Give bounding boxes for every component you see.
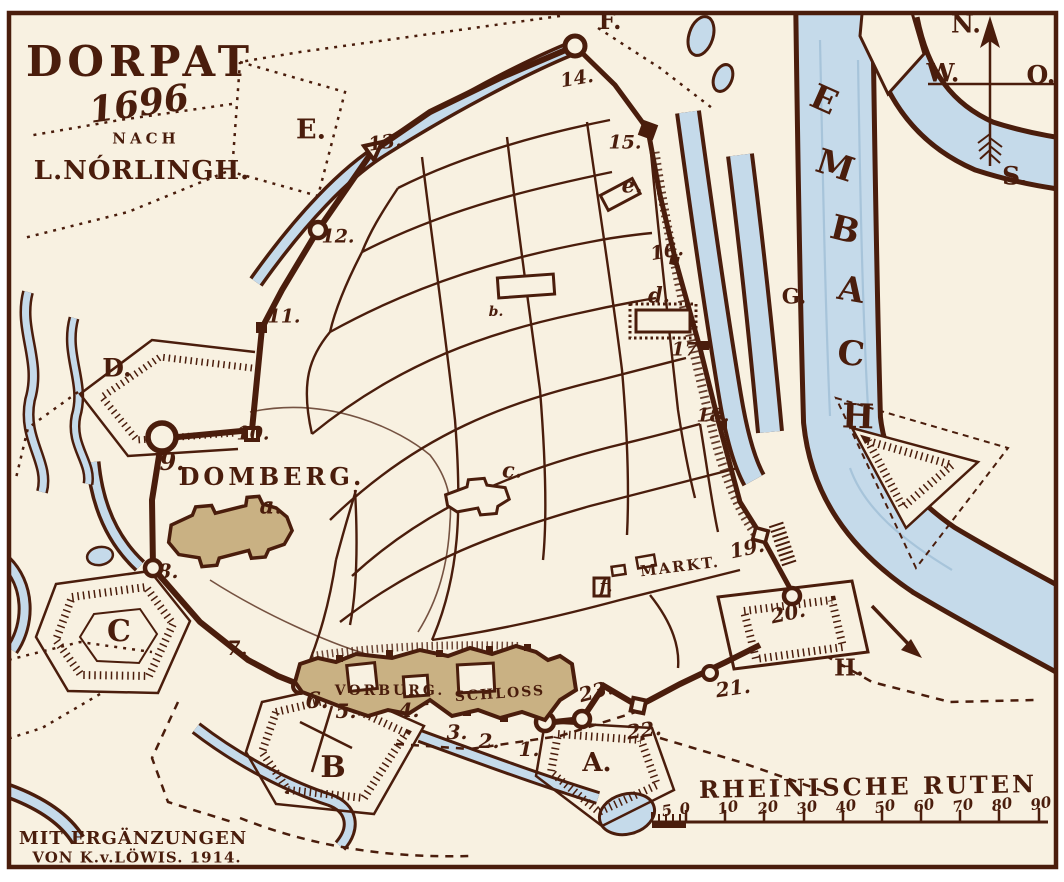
- wall-point-17: 17.: [671, 341, 704, 360]
- bastion-label-a: A.: [582, 750, 611, 776]
- area-label-domberg: DOMBERG.: [179, 465, 366, 489]
- scale-tick-30: 30: [795, 799, 818, 817]
- scale-tick-40: 40: [834, 798, 857, 816]
- map-title: DORPAT: [26, 41, 254, 83]
- wall-point-15: 15.: [608, 134, 641, 153]
- map-year: 1696: [87, 79, 191, 129]
- scale-tick-5: 5: [661, 803, 674, 820]
- building-label-c: c.: [502, 460, 522, 481]
- wall-point-11: 11.: [267, 308, 300, 327]
- area-label-e-outwork: E.: [296, 117, 326, 144]
- building-label-d: d.: [648, 285, 670, 306]
- wall-point-7: 7.: [227, 638, 248, 658]
- wall-point-8: 8.: [158, 561, 179, 581]
- building-label-f: f.: [599, 578, 612, 596]
- scale-tick-10: 10: [716, 799, 739, 817]
- river-name-letter-e: E: [805, 79, 843, 121]
- bastion-label-h: H.: [834, 657, 864, 680]
- bastion-label-c: C: [107, 617, 131, 647]
- building-label-a: a.: [260, 495, 283, 518]
- attribution-line-2: VON K.v.LÖWIS. 1914.: [32, 851, 241, 866]
- scale-tick-0: 0: [679, 801, 692, 818]
- river-name-letter-h: H: [841, 399, 874, 434]
- wall-point-18: 18.: [696, 407, 729, 426]
- scale-tick-70: 70: [951, 797, 974, 815]
- area-label-schloss: SCHLOSS: [454, 684, 545, 704]
- wall-point-10: 10.: [236, 425, 269, 444]
- river-name-letter-a: A: [835, 271, 867, 309]
- wall-point-1: 1.: [519, 739, 540, 759]
- map-labels-layer: DORPAT1696NACHL.NÓRLINGH.MIT ERGÄNZUNGEN…: [0, 0, 1064, 882]
- wall-point-12: 12.: [321, 228, 354, 247]
- bastion-label-b: B: [320, 753, 345, 783]
- compass-west-label: W.: [927, 61, 960, 86]
- wall-point-14: 14.: [559, 67, 595, 91]
- scale-tick-80: 80: [990, 796, 1013, 814]
- wall-point-21: 21.: [714, 676, 751, 701]
- area-label-g-island: G.: [782, 286, 807, 307]
- wall-point-16: 16.: [649, 240, 685, 264]
- map-author: L.NÓRLINGH.: [34, 158, 250, 184]
- scale-title: RHEINISCHE RUTEN: [699, 772, 1037, 802]
- compass-east-label: O.: [1026, 63, 1055, 88]
- compass-north-label: N.: [951, 12, 981, 37]
- river-name-letter-m: M: [812, 144, 858, 188]
- scale-tick-50: 50: [873, 798, 896, 816]
- wall-point-19: 19.: [728, 535, 766, 562]
- wall-point-6: 6.: [306, 690, 329, 712]
- wall-point-4: 4.: [399, 700, 420, 720]
- compass-south-label: S.: [1002, 164, 1028, 189]
- bastion-label-d: D.: [102, 356, 132, 381]
- area-label-f-outwork: F.: [599, 9, 622, 33]
- river-name-letter-b: B: [827, 210, 863, 250]
- wall-point-20: 20.: [769, 600, 807, 627]
- scale-tick-20: 20: [756, 799, 779, 817]
- wall-point-3: 3.: [447, 722, 468, 742]
- wall-point-5: 5.: [336, 701, 357, 721]
- wall-point-13: 13.: [367, 131, 402, 154]
- attribution-line-1: MIT ERGÄNZUNGEN: [19, 830, 247, 848]
- wall-point-2: 2.: [479, 731, 500, 751]
- area-label-markt: MARKT.: [639, 555, 720, 580]
- historical-city-map-dorpat: DORPAT1696NACHL.NÓRLINGH.MIT ERGÄNZUNGEN…: [0, 0, 1064, 882]
- building-label-b: b.: [489, 305, 504, 319]
- wall-point-9: 9.: [159, 450, 184, 474]
- wall-point-23: 23.: [577, 677, 616, 705]
- wall-point-22: 22.: [625, 718, 662, 743]
- area-label-vorburg: VORBURG.: [335, 684, 445, 698]
- scale-tick-60: 60: [912, 797, 935, 815]
- scale-tick-90: 90: [1029, 795, 1052, 813]
- map-subtitle-nach: NACH: [112, 132, 179, 147]
- building-label-e: e.: [622, 175, 643, 196]
- river-name-letter-c: C: [836, 336, 866, 373]
